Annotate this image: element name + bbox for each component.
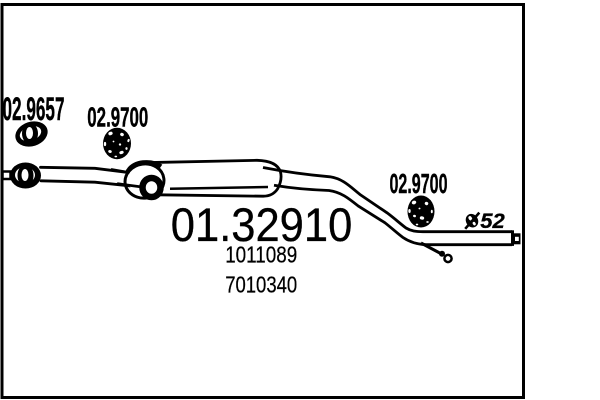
- svg-text:02.9700: 02.9700: [87, 101, 148, 132]
- svg-text:02.9700: 02.9700: [390, 168, 448, 199]
- svg-text:7010340: 7010340: [225, 272, 297, 298]
- svg-text:52: 52: [480, 210, 505, 233]
- svg-text:1011089: 1011089: [225, 242, 297, 268]
